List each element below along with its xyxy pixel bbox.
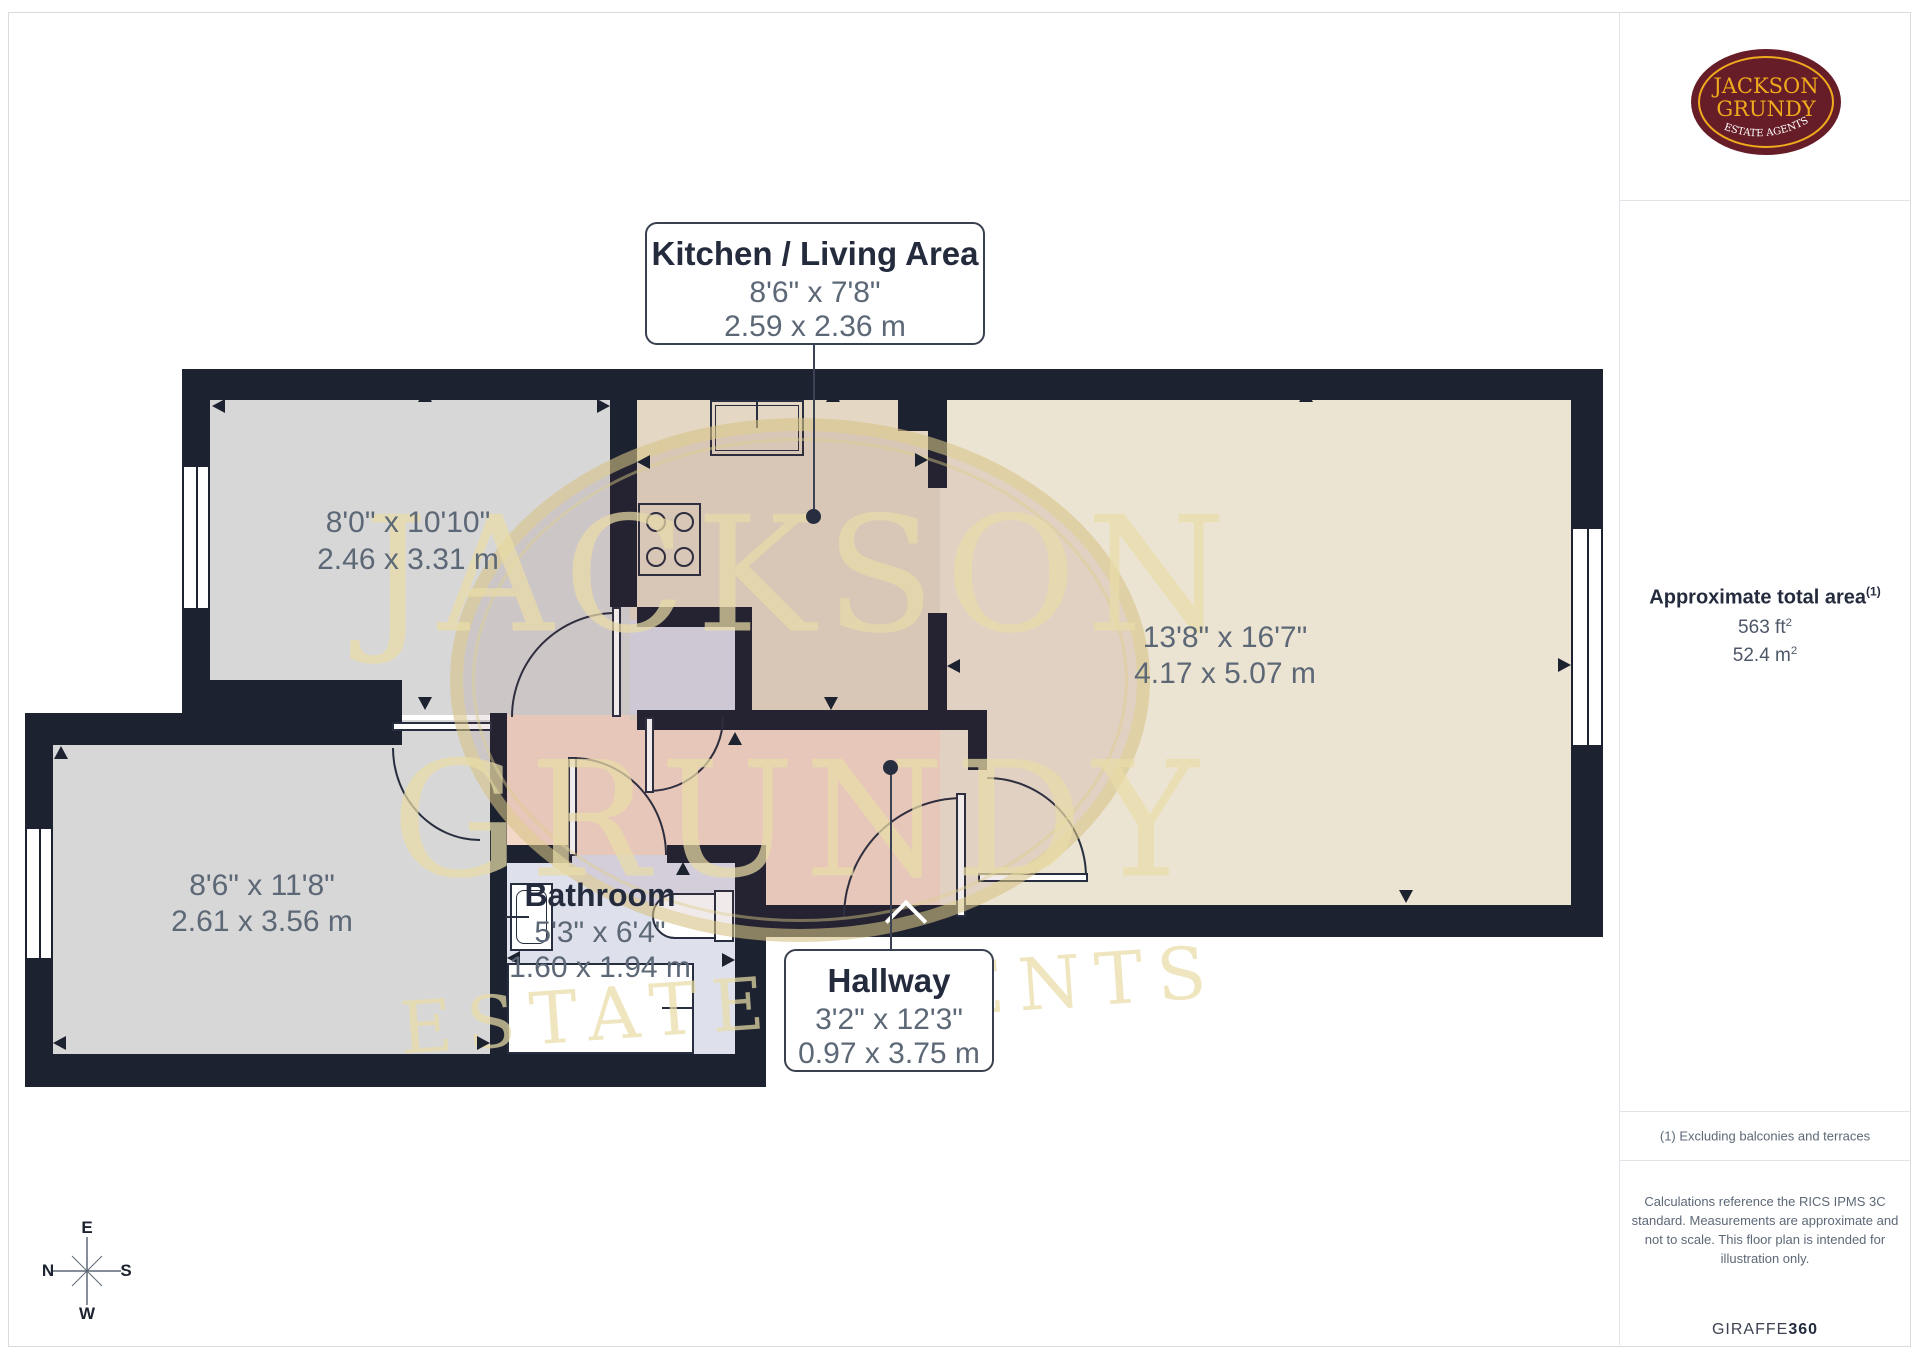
arrow-up-icon — [826, 389, 840, 402]
kitchen-leader-dot — [806, 509, 821, 524]
arrow-up-icon — [418, 389, 432, 402]
arrow-right-icon — [597, 399, 610, 413]
sidebar-divider — [1619, 13, 1620, 1345]
bedroom-bottom-dims-metric: 2.61 x 3.56 m — [171, 904, 353, 940]
bedroom-top-dims-metric: 2.46 x 3.31 m — [317, 542, 499, 578]
area-metric: 52.4 m2 — [1733, 645, 1797, 667]
bathroom-dims-imperial: 5'3" x 6'4" — [534, 915, 665, 951]
hallway-callout: Hallway 3'2" x 12'3" 0.97 x 3.75 m — [784, 949, 994, 1072]
sidebar-section-divider — [1620, 1160, 1910, 1161]
arrow-down-icon — [418, 697, 432, 710]
bedroom-top-dims-imperial: 8'0" x 10'10" — [326, 505, 491, 541]
living-room-dims-imperial: 13'8" x 16'7" — [1143, 620, 1308, 656]
compass-right-label: S — [120, 1261, 131, 1281]
compass-bottom-label: W — [79, 1304, 95, 1324]
watermark-line2: GRUNDY — [391, 727, 1208, 914]
area-title: Approximate total area(1) — [1649, 585, 1880, 610]
bathroom-label: Bathroom — [524, 876, 675, 914]
arrow-right-icon — [915, 453, 928, 467]
jackson-grundy-logo: JACKSON GRUNDY ESTATE AGENTS — [1690, 48, 1842, 156]
sink-tap-icon — [505, 916, 529, 918]
window-living-icon — [1571, 527, 1603, 747]
arrow-down-icon — [1399, 890, 1413, 903]
hallway-label: Hallway — [786, 959, 992, 1003]
arrow-up-icon — [1299, 389, 1313, 402]
hallway-dims-imperial: 3'2" x 12'3" — [786, 1003, 992, 1037]
area-footnote-marker: (1) — [1866, 585, 1881, 599]
sidebar-section-divider — [1620, 1111, 1910, 1112]
sidebar-disclaimer: Calculations reference the RICS IPMS 3C … — [1630, 1192, 1900, 1268]
kitchen-leader-line — [813, 345, 815, 516]
arrow-right-icon — [722, 953, 735, 967]
window-bedroom-bottom-icon — [25, 827, 53, 960]
hallway-leader-line — [890, 767, 892, 949]
kitchen-living-dims-imperial: 8'6" x 7'8" — [647, 276, 983, 310]
floorplan-page: JACKSON GRUNDY ESTATE AGENTS 8'0" x 10'1… — [0, 0, 1920, 1358]
kitchen-living-dims-metric: 2.59 x 2.36 m — [647, 310, 983, 344]
wall-bed-top-bottom — [182, 680, 402, 713]
bathroom-dims-metric: 1.60 x 1.94 m — [509, 950, 691, 986]
arrow-down-icon — [824, 697, 838, 710]
living-room-dims-metric: 4.17 x 5.07 m — [1134, 656, 1316, 692]
svg-text:JACKSON: JACKSON — [1711, 74, 1818, 98]
arrow-left-icon — [947, 659, 960, 673]
compass-left-label: N — [42, 1261, 54, 1281]
giraffe360-brand: GIRAFFE360 — [1712, 1321, 1818, 1339]
arrow-right-icon — [1558, 658, 1571, 672]
kitchen-living-callout: Kitchen / Living Area 8'6" x 7'8" 2.59 x… — [645, 222, 985, 345]
wall-kitchen-living-stub-foot — [898, 400, 928, 431]
arrow-up-icon — [676, 862, 690, 875]
arrow-up-icon — [728, 732, 742, 745]
arrow-right-icon — [477, 1036, 490, 1050]
arrow-left-icon — [637, 455, 650, 469]
wall-top — [182, 369, 1603, 400]
sidebar-section-divider — [1620, 200, 1910, 201]
hallway-leader-dot — [883, 760, 898, 775]
arrow-left-icon — [212, 399, 225, 413]
hallway-dims-metric: 0.97 x 3.75 m — [786, 1037, 992, 1071]
wall-bottom-left — [25, 1054, 766, 1087]
arrow-up-icon — [54, 746, 68, 759]
area-imperial: 563 ft2 — [1738, 617, 1792, 639]
arrow-left-icon — [53, 1036, 66, 1050]
compass-top-label: E — [81, 1218, 92, 1238]
sidebar-footnote: (1) Excluding balconies and terraces — [1660, 1129, 1870, 1144]
wall-step-band — [25, 713, 402, 745]
bedroom-bottom-dims-imperial: 8'6" x 11'8" — [189, 868, 335, 904]
window-bedroom-top-icon — [182, 465, 210, 610]
kitchen-living-label: Kitchen / Living Area — [647, 232, 983, 276]
